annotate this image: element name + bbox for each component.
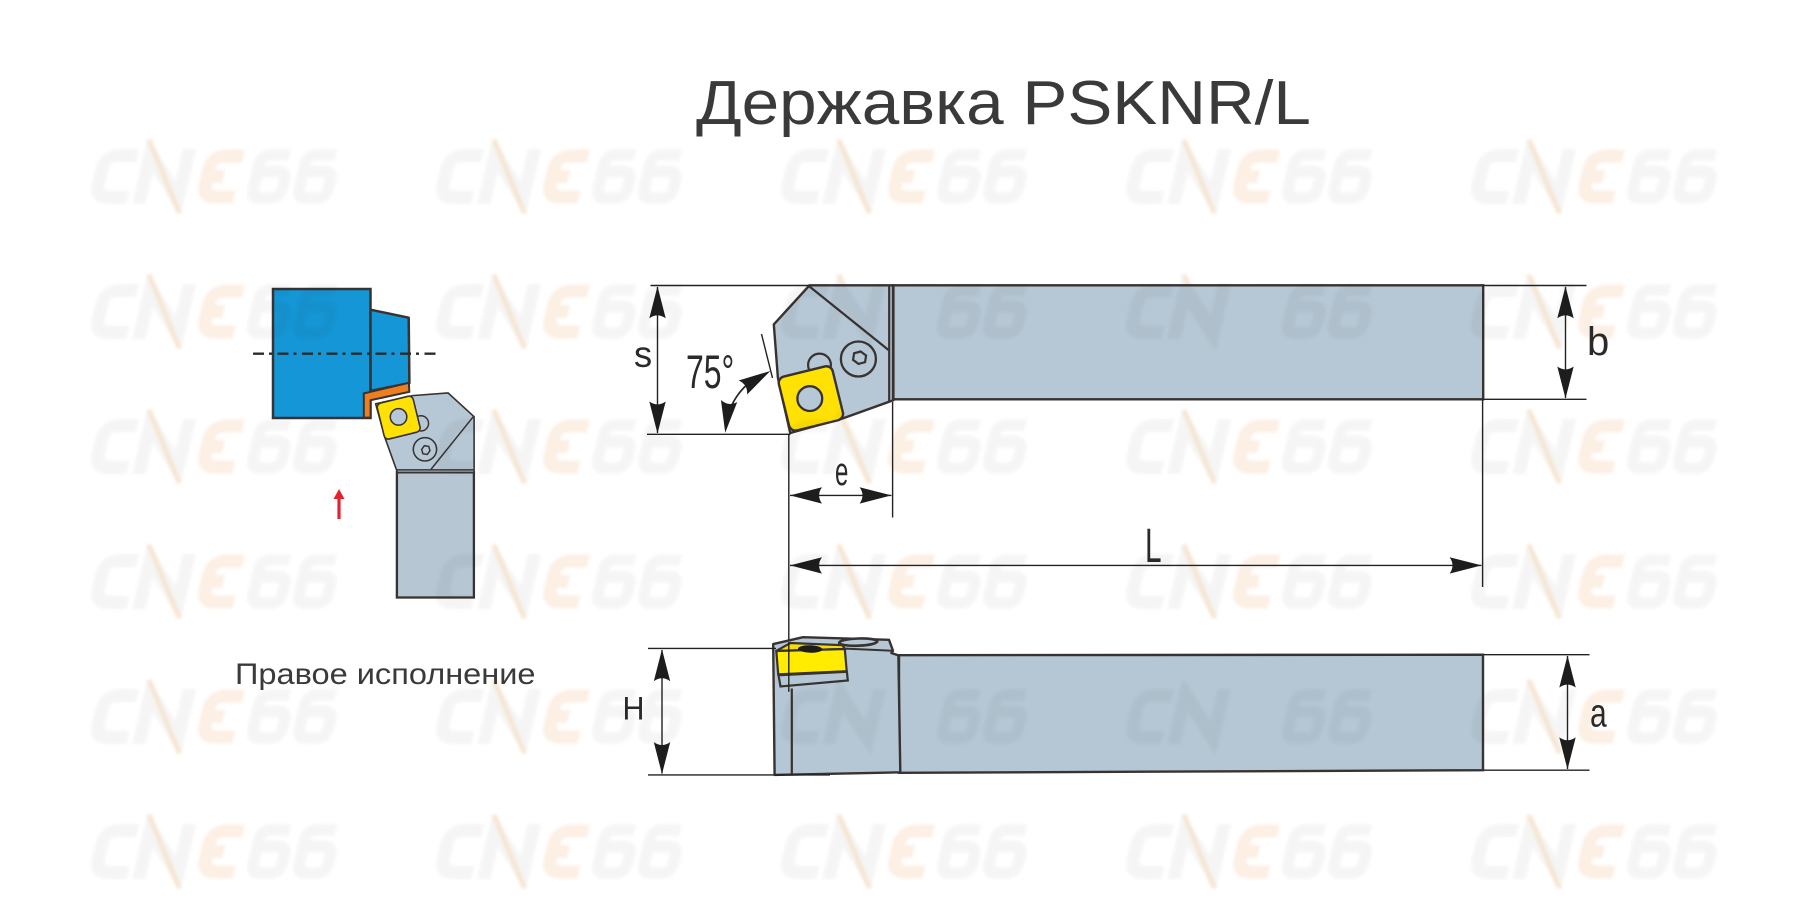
- svg-text:Правое исполнение: Правое исполнение: [235, 657, 536, 691]
- svg-text:Державка PSKNR/L: Державка PSKNR/L: [696, 68, 1311, 138]
- svg-text:75°: 75°: [686, 346, 734, 399]
- svg-text:s: s: [634, 334, 652, 375]
